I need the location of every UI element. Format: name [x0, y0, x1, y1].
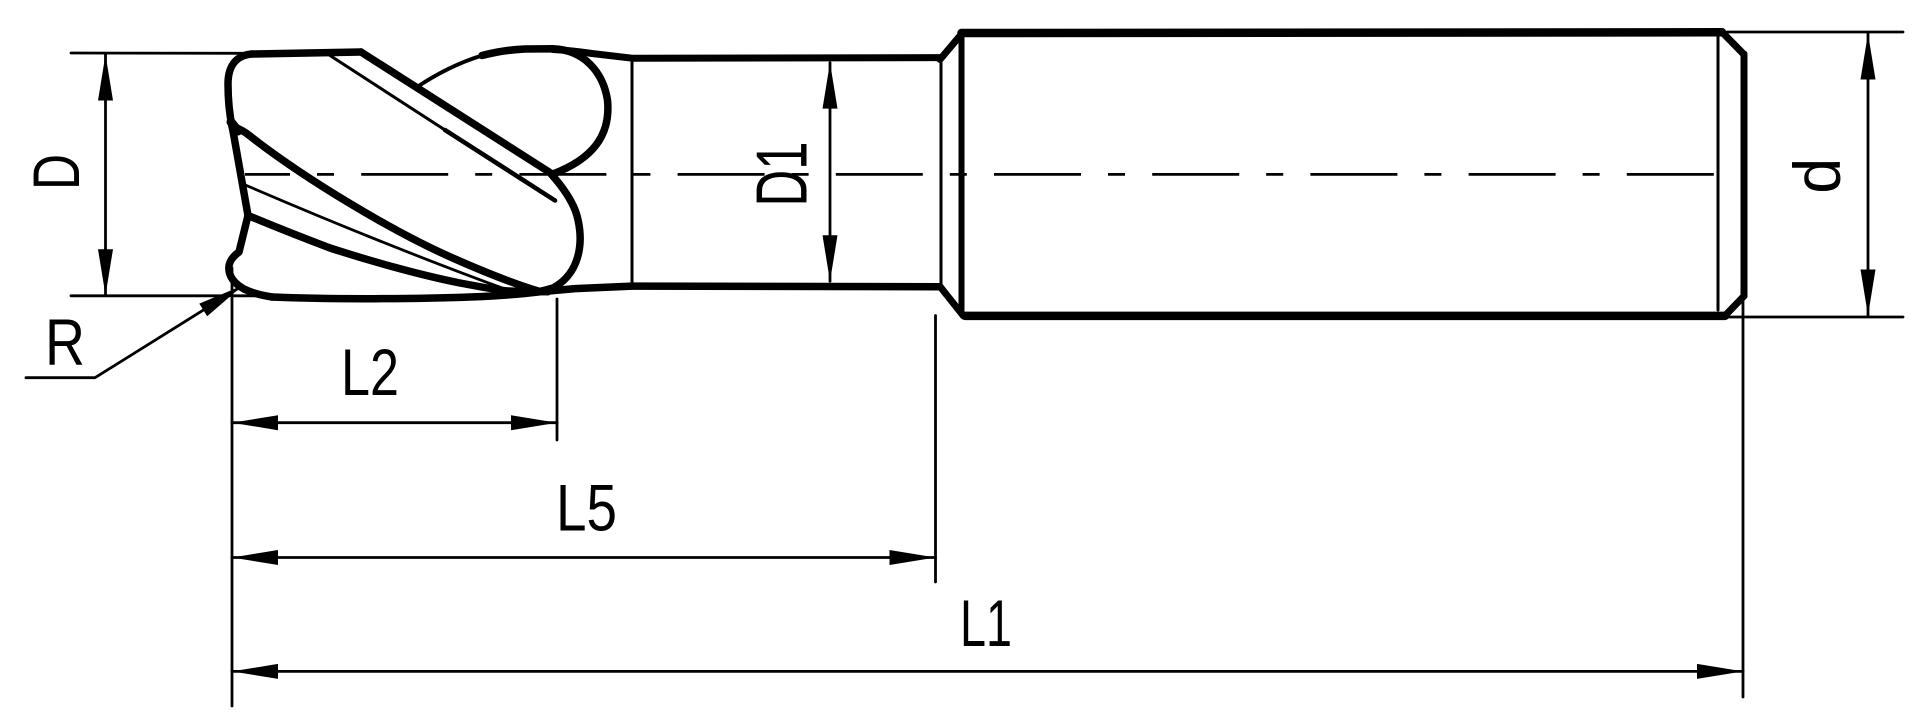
- svg-text:L2: L2: [341, 335, 399, 409]
- svg-text:R: R: [45, 305, 85, 379]
- svg-text:d: d: [1780, 158, 1854, 194]
- svg-text:D1: D1: [743, 142, 823, 207]
- svg-text:D: D: [19, 154, 93, 190]
- svg-text:L5: L5: [556, 471, 617, 545]
- svg-text:L1: L1: [960, 586, 1012, 660]
